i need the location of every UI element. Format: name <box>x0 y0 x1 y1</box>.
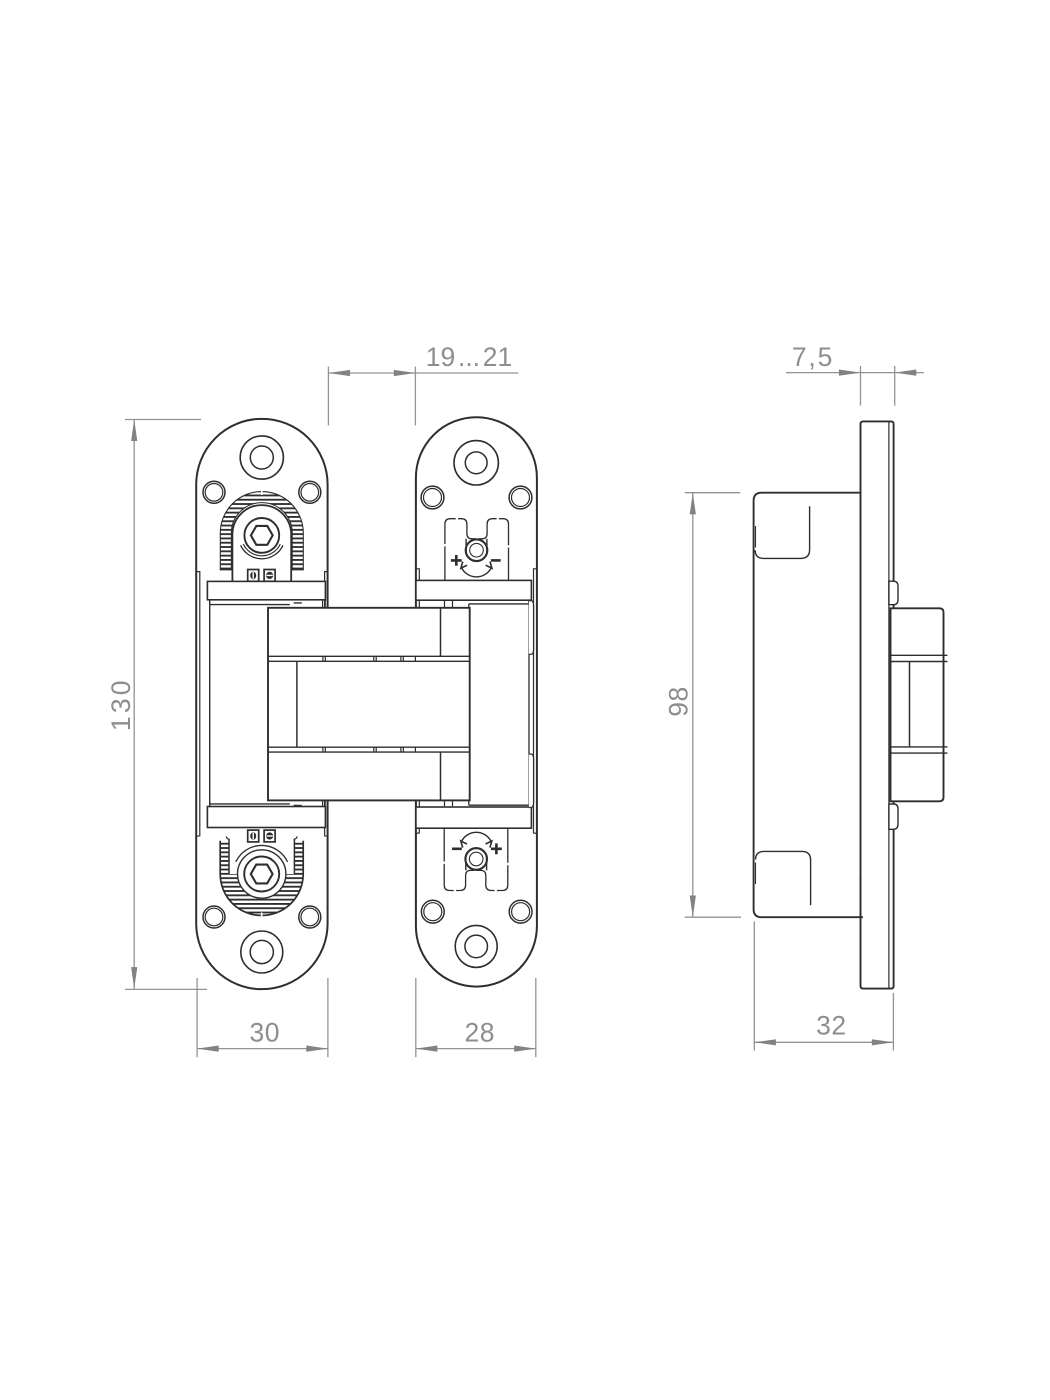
svg-text:7,5: 7,5 <box>792 342 834 372</box>
svg-text:32: 32 <box>816 1010 846 1040</box>
svg-text:98: 98 <box>663 686 693 716</box>
svg-text:130: 130 <box>106 677 136 731</box>
svg-text:28: 28 <box>465 1017 495 1047</box>
svg-text:30: 30 <box>249 1017 279 1047</box>
svg-text:...: ... <box>458 342 480 372</box>
svg-text:19: 19 <box>426 342 455 372</box>
svg-text:21: 21 <box>483 342 512 372</box>
